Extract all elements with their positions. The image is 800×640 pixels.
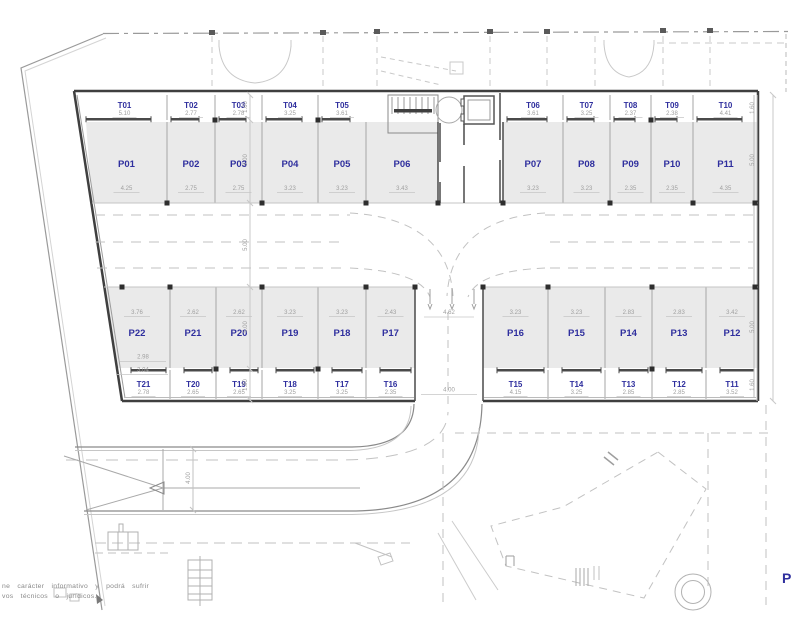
aisle-edges [92, 203, 758, 287]
stall-label-P13: P13 [671, 328, 688, 339]
stall-label-P17: P17 [382, 328, 399, 339]
column [650, 285, 655, 290]
stall-label-P19: P19 [282, 328, 299, 339]
column [436, 201, 441, 206]
dim-lane-bottom: 4.00 [443, 388, 455, 394]
storage-dim-T09: 2.38 [666, 111, 678, 117]
stall-dim-P11: 4.35 [720, 186, 732, 192]
storage-label-T20: T20 [186, 380, 200, 389]
column [260, 285, 265, 290]
dim-right-2: 5.00 [750, 321, 756, 333]
storage-dim-T14: 3.25 [571, 390, 583, 396]
parking-stalls: P01P02P03P04P05P06T01T02T03T04T05P07P08P… [86, 95, 758, 399]
column [213, 118, 218, 123]
storage-label-T13: T13 [622, 380, 636, 389]
dim-center-4: 1.80 [243, 379, 249, 391]
storage-label-T11: T11 [725, 380, 739, 389]
stall-dim-P18: 3.23 [336, 310, 348, 316]
storage-dim-T20: 2.65 [187, 390, 199, 396]
column [260, 201, 265, 206]
storage-label-T18: T18 [283, 380, 297, 389]
dim-p22-inner-1: 3.04 [137, 368, 149, 374]
storage-dim-T17: 3.25 [336, 390, 348, 396]
column [165, 201, 170, 206]
lower-diagonal [355, 543, 392, 557]
column [608, 201, 613, 206]
pool-ladder-top [604, 452, 618, 465]
road-centerline [66, 412, 448, 460]
storage-dim-T12: 2.85 [673, 390, 685, 396]
stall-dim-P01: 4.25 [121, 186, 133, 192]
stall-label-P16: P16 [507, 328, 524, 339]
pool-ladder-bottom [506, 556, 514, 566]
disclaimer-line-1: ne carácter informativo y podrá sufrir [2, 583, 150, 590]
garden-bench [378, 553, 393, 565]
storage-label-T01: T01 [118, 101, 132, 110]
stall-dim-P05: 3.23 [336, 186, 348, 192]
dim-right-0: 1.60 [750, 102, 756, 114]
storage-dim-T04: 3.25 [284, 111, 296, 117]
entry-ramp-arrow [381, 57, 456, 85]
floor-plan-canvas: P01P02P03P04P05P06T01T02T03T04T05P07P08P… [0, 0, 800, 640]
stall-label-P18: P18 [334, 328, 351, 339]
storage-dim-T10: 4.41 [720, 111, 732, 117]
stall-dim-P16: 3.23 [510, 310, 522, 316]
dim-center-3: 5.00 [243, 321, 249, 333]
storage-dim-T02: 2.77 [185, 111, 197, 117]
column [168, 285, 173, 290]
storage-label-T12: T12 [672, 380, 686, 389]
column [649, 118, 654, 123]
stall-label-P21: P21 [185, 328, 203, 339]
column [364, 201, 369, 206]
stall-dim-P06: 3.43 [396, 186, 408, 192]
storage-dim-T16: 2.35 [385, 390, 397, 396]
storage-dim-T21: 2.78 [138, 390, 150, 396]
lane-entry-ticks [428, 288, 476, 309]
dim-road-width: 4.00 [186, 472, 192, 484]
stall-dim-P17: 2.43 [385, 310, 397, 316]
column [501, 201, 506, 206]
storage-label-T21: T21 [137, 380, 151, 389]
dim-right-1: 5.00 [750, 154, 756, 166]
storage-label-T09: T09 [665, 101, 679, 110]
dim-lane-top: 4.62 [443, 310, 455, 316]
stall-label-P15: P15 [568, 328, 586, 339]
elevator [461, 96, 494, 124]
site-boundary-top [103, 32, 788, 34]
stall-dim-P19: 3.23 [284, 310, 296, 316]
stall-label-P06: P06 [394, 159, 411, 170]
storage-label-T16: T16 [384, 380, 398, 389]
storage-label-T10: T10 [719, 101, 733, 110]
storage-dim-T06: 3.61 [527, 111, 539, 117]
disclaimer-line-2: vos técnicos o jurídicos. [2, 593, 97, 600]
stall-label-P22: P22 [129, 328, 146, 339]
stall-label-P07: P07 [525, 159, 542, 170]
column [691, 201, 696, 206]
column [753, 201, 758, 206]
dim-center-1: 5.00 [243, 154, 249, 166]
stair-rail [394, 109, 432, 113]
storage-dim-T11: 3.52 [726, 390, 738, 396]
lane-walls [415, 287, 483, 401]
column [214, 367, 219, 372]
storage-dim-T13: 2.85 [623, 390, 635, 396]
stall-dim-P21: 2.62 [187, 310, 199, 316]
storage-label-T14: T14 [570, 380, 584, 389]
storage-label-T07: T07 [580, 101, 594, 110]
dim-center-0: 1.60 [243, 101, 249, 113]
dim-p22-inner-0: 2.98 [137, 355, 149, 361]
stall-label-P04: P04 [282, 159, 300, 170]
stall-label-P10: P10 [664, 159, 681, 170]
stall-dim-P13: 2.83 [673, 310, 685, 316]
access-road [66, 404, 498, 600]
column [316, 118, 321, 123]
storage-dim-T08: 2.37 [625, 111, 637, 117]
stall-dim-P03: 2.75 [233, 186, 245, 192]
storage-dim-T15: 4.15 [510, 390, 522, 396]
exterior-stair [188, 556, 212, 606]
dim-center-2: 5.00 [243, 239, 249, 251]
stall-dim-P07: 3.23 [527, 186, 539, 192]
street-continuation [438, 521, 498, 600]
column [481, 285, 486, 290]
storage-label-T08: T08 [624, 101, 638, 110]
storage-dim-T01: 5.10 [119, 111, 131, 117]
stall-dim-P04: 3.23 [284, 186, 296, 192]
double-door-left [219, 40, 291, 83]
ramp-arrow [64, 449, 360, 510]
stall-label-P09: P09 [622, 159, 639, 170]
corner-letter: P [782, 570, 791, 586]
stall-dim-P22: 3.76 [131, 310, 143, 316]
storage-dim-T18: 3.25 [284, 390, 296, 396]
column [120, 285, 125, 290]
storage-label-T17: T17 [335, 380, 349, 389]
stall-label-P12: P12 [724, 328, 741, 339]
spa-circle-inner [682, 581, 705, 604]
service-box [108, 524, 138, 550]
dim-right-3: 1.60 [750, 379, 756, 391]
stall-label-P11: P11 [717, 159, 734, 170]
stall-dim-P02: 2.75 [185, 186, 197, 192]
stall-dim-P12: 3.42 [726, 310, 738, 316]
stall-label-P14: P14 [620, 328, 638, 339]
storage-dim-T05: 3.61 [336, 111, 348, 117]
stall-dim-P14: 2.83 [623, 310, 635, 316]
column [364, 285, 369, 290]
upper-floor-overhang [212, 36, 785, 90]
stall-dim-P10: 2.35 [666, 186, 678, 192]
stall-dim-P08: 3.23 [581, 186, 593, 192]
column [753, 285, 758, 290]
stall-label-P08: P08 [578, 159, 595, 170]
turning-circle [436, 97, 462, 123]
stall-dim-P09: 2.35 [625, 186, 637, 192]
spa-circle-outer [675, 574, 711, 610]
column [546, 285, 551, 290]
stall-dim-P15: 3.23 [571, 310, 583, 316]
storage-label-T02: T02 [184, 101, 198, 110]
column [316, 367, 321, 372]
stall-label-P02: P02 [183, 159, 200, 170]
storage-label-T05: T05 [335, 101, 349, 110]
stall-label-P01: P01 [118, 159, 136, 170]
column [413, 285, 418, 290]
storage-label-T06: T06 [526, 101, 540, 110]
storage-label-T04: T04 [283, 101, 297, 110]
column [650, 367, 655, 372]
stall-label-P05: P05 [334, 159, 352, 170]
entry-ramp-landing [450, 62, 463, 74]
storage-label-T15: T15 [509, 380, 523, 389]
double-door-right [604, 40, 654, 77]
storage-dim-T07: 3.25 [581, 111, 593, 117]
stall-dim-P20: 2.62 [233, 310, 245, 316]
